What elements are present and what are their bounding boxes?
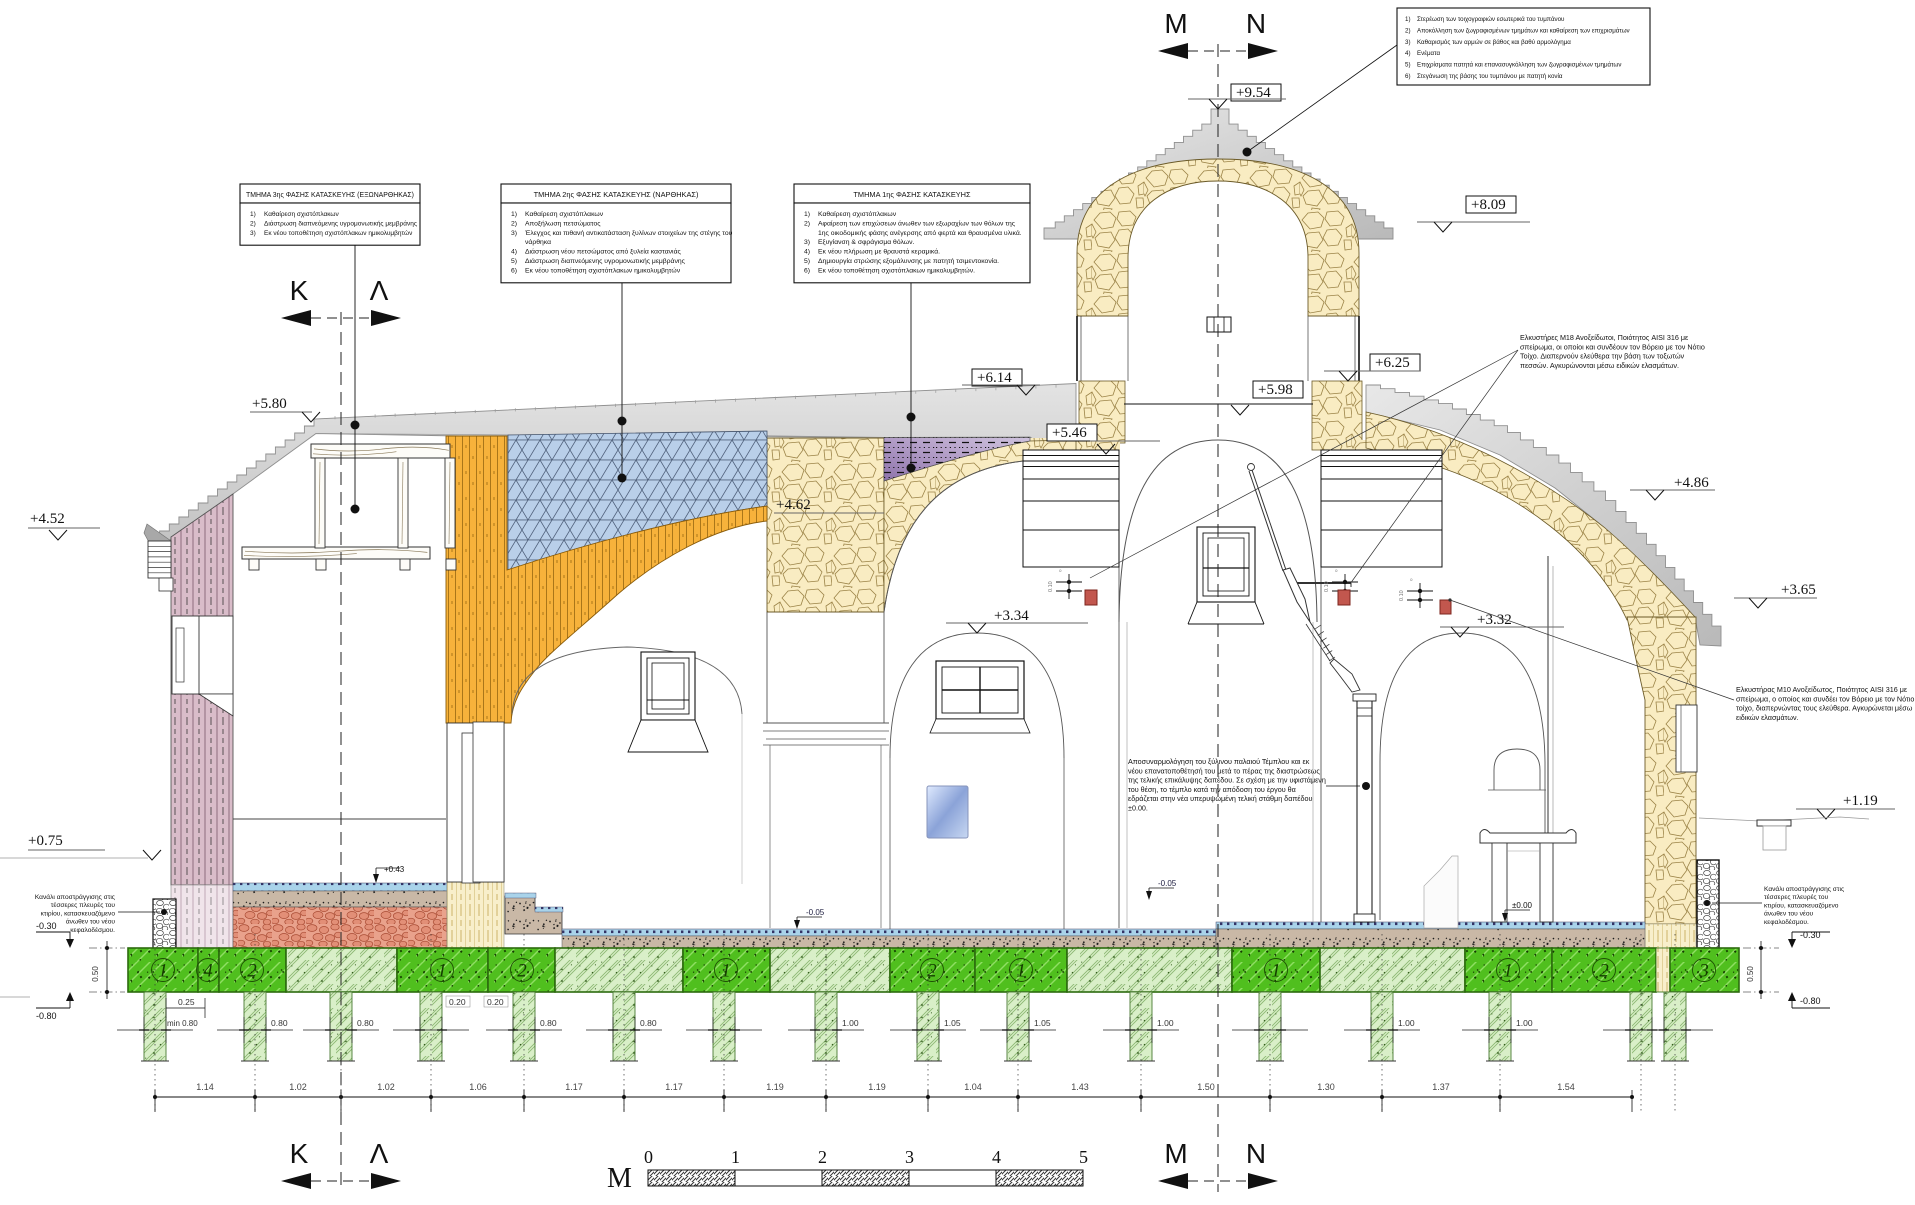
svg-text:0.10: 0.10 xyxy=(1399,590,1405,601)
svg-text:6): 6) xyxy=(804,267,810,274)
svg-text:4): 4) xyxy=(804,249,810,256)
svg-text:0.80: 0.80 xyxy=(640,1018,657,1028)
svg-text:Στεγάνωση της βάσης του τυμπάν: Στεγάνωση της βάσης του τυμπάνου με πατη… xyxy=(1417,73,1563,80)
svg-text:κτιρίου, κατασκευαζόμενο: κτιρίου, κατασκευαζόμενο xyxy=(1764,901,1839,909)
svg-text:0: 0 xyxy=(644,1147,653,1167)
svg-text:1: 1 xyxy=(158,961,168,982)
svg-text:1.54: 1.54 xyxy=(1557,1082,1575,1092)
svg-text:±0.00.: ±0.00. xyxy=(1128,804,1148,813)
svg-text:κτιρίου, κατασκευαζόμενο: κτιρίου, κατασκευαζόμενο xyxy=(41,909,116,917)
svg-text:Τοίχο. Διαπερνούν ελεύθερα την: Τοίχο. Διαπερνούν ελεύθερα την βάση των … xyxy=(1520,352,1685,361)
svg-text:+3.65: +3.65 xyxy=(1781,582,1816,598)
svg-text:1.17: 1.17 xyxy=(565,1082,583,1092)
svg-text:Αποξήλωση πετσώματος: Αποξήλωση πετσώματος xyxy=(525,219,601,227)
svg-text:5): 5) xyxy=(804,258,810,265)
svg-text:0.80: 0.80 xyxy=(540,1018,557,1028)
svg-text:K: K xyxy=(290,1138,309,1169)
svg-text:2: 2 xyxy=(927,961,937,982)
svg-text:+4.62: +4.62 xyxy=(776,497,811,513)
svg-text:1.50: 1.50 xyxy=(1197,1082,1215,1092)
svg-text:+4.52: +4.52 xyxy=(30,511,65,527)
svg-text:6): 6) xyxy=(1405,73,1411,80)
svg-text:Διάστρωση διαπνεόμενης υγρομον: Διάστρωση διαπνεόμενης υγρομονωτικής μεμ… xyxy=(525,257,686,265)
svg-text:3: 3 xyxy=(905,1147,914,1167)
svg-text:Εκ νέου τοποθέτηση σχιστόπλακω: Εκ νέου τοποθέτηση σχιστόπλακων ημικολυμ… xyxy=(525,266,681,274)
svg-text:2: 2 xyxy=(818,1147,827,1167)
svg-text:ΤΜΗΜΑ 3ης ΦΑΣΗΣ ΚΑΤΑΣΚΕΥΗΣ (ΕΞ: ΤΜΗΜΑ 3ης ΦΑΣΗΣ ΚΑΤΑΣΚΕΥΗΣ (ΕΞΩΝΑΡΘΗΚΑΣ) xyxy=(246,192,414,199)
svg-text:1.19: 1.19 xyxy=(766,1082,784,1092)
svg-text:1.02: 1.02 xyxy=(289,1082,307,1092)
svg-text:1: 1 xyxy=(437,961,447,982)
svg-text:Δημιουργία στρώσης εξομάλυνσης: Δημιουργία στρώσης εξομάλυνσης με πατητή… xyxy=(818,257,999,265)
svg-text:Διάστρωση νέου πετσώματος από: Διάστρωση νέου πετσώματος από ξυλεία κασ… xyxy=(525,248,681,256)
svg-text:1.30: 1.30 xyxy=(1317,1082,1335,1092)
svg-text:3): 3) xyxy=(804,239,810,246)
svg-text:1.17: 1.17 xyxy=(665,1082,683,1092)
svg-text:0.10: 0.10 xyxy=(1324,581,1330,592)
svg-text:1.19: 1.19 xyxy=(868,1082,886,1092)
svg-text:τοίχο, διαπερνώντας τους ελεύθ: τοίχο, διαπερνώντας τους ελεύθερα. Αγκυρ… xyxy=(1736,704,1913,713)
svg-text:πεσσών. Αγκυρώνονται μέσω ειδι: πεσσών. Αγκυρώνονται μέσω ειδικών ελασμά… xyxy=(1520,361,1679,370)
svg-text:-0.30: -0.30 xyxy=(36,921,57,931)
svg-text:1.05: 1.05 xyxy=(944,1018,961,1028)
svg-text:του θέση, το τέμπλο κατά την α: του θέση, το τέμπλο κατά την απόδοση του… xyxy=(1128,785,1296,794)
svg-text:-0.80: -0.80 xyxy=(1800,996,1821,1006)
svg-text:K: K xyxy=(290,275,309,306)
svg-text:σπείρωμα, οι οποίοι και συνδέο: σπείρωμα, οι οποίοι και συνδέουν τον Βόρ… xyxy=(1520,342,1705,351)
svg-text:+0.75: +0.75 xyxy=(28,833,63,849)
svg-text:2): 2) xyxy=(1405,27,1411,34)
svg-text:+6.25: +6.25 xyxy=(1375,355,1410,371)
svg-text:1.14: 1.14 xyxy=(196,1082,214,1092)
svg-text:1.04: 1.04 xyxy=(964,1082,982,1092)
svg-text:2): 2) xyxy=(804,220,810,227)
svg-text:+4.86: +4.86 xyxy=(1674,475,1709,491)
svg-text:νάρθηκα: νάρθηκα xyxy=(525,238,551,246)
svg-text:0.20: 0.20 xyxy=(487,997,504,1007)
svg-text:Εξυγίανση & σφράγισμα θόλων.: Εξυγίανση & σφράγισμα θόλων. xyxy=(818,238,914,246)
svg-text:2): 2) xyxy=(250,220,256,227)
svg-text:Λ: Λ xyxy=(370,1138,389,1169)
svg-text:-0.05: -0.05 xyxy=(1158,879,1177,888)
svg-text:άνωθεν του νέου: άνωθεν του νέου xyxy=(66,918,116,926)
svg-text:1): 1) xyxy=(250,211,256,218)
svg-text:άνωθεν του νέου: άνωθεν του νέου xyxy=(1764,910,1814,918)
svg-text:6): 6) xyxy=(511,267,517,274)
svg-text:M: M xyxy=(1164,1138,1187,1169)
svg-text:3): 3) xyxy=(1405,39,1411,46)
svg-text:ΤΜΗΜΑ 2ης ΦΑΣΗΣ ΚΑΤΑΣΚΕΥΗΣ (ΝΑ: ΤΜΗΜΑ 2ης ΦΑΣΗΣ ΚΑΤΑΣΚΕΥΗΣ (ΝΑΡΘΗΚΑΣ) xyxy=(534,190,699,199)
svg-text:-0.80: -0.80 xyxy=(36,1011,57,1021)
svg-text:+0.43: +0.43 xyxy=(384,865,405,874)
svg-text:+3.34: +3.34 xyxy=(994,608,1029,624)
svg-text:Ελκυστήρας Μ10 Ανοξείδωτος, Πο: Ελκυστήρας Μ10 Ανοξείδωτος, Ποιότητος AI… xyxy=(1736,685,1908,694)
svg-text:3): 3) xyxy=(250,230,256,237)
svg-text:Στερέωση των τοιχογραφιών εσωτ: Στερέωση των τοιχογραφιών εσωτερικά του … xyxy=(1417,16,1565,23)
svg-text:Καθαίρεση σχιστόπλακων: Καθαίρεση σχιστόπλακων xyxy=(525,210,604,218)
svg-text:Έλεγχος και πιθανή αντικατάστα: Έλεγχος και πιθανή αντικατάσταση ξυλίνων… xyxy=(524,229,733,237)
svg-text:Επιχρίσματα πατητά και επανασυ: Επιχρίσματα πατητά και επανασυγκόλληση τ… xyxy=(1417,62,1621,69)
svg-text:ΤΜΗΜΑ 1ης ΦΑΣΗΣ ΚΑΤΑΣΚΕΥΗΣ: ΤΜΗΜΑ 1ης ΦΑΣΗΣ ΚΑΤΑΣΚΕΥΗΣ xyxy=(853,190,971,199)
svg-text:2): 2) xyxy=(511,220,517,227)
svg-text:min 0.80: min 0.80 xyxy=(167,1019,198,1028)
svg-text:+5.46: +5.46 xyxy=(1052,425,1087,441)
svg-text:1ης οικοδομικής φάσης ανέγερση: 1ης οικοδομικής φάσης ανέγερσης από φερτ… xyxy=(818,229,1022,237)
svg-text:1.00: 1.00 xyxy=(1398,1018,1415,1028)
svg-text:Διάστρωση διαπνεόμενης υγρομον: Διάστρωση διαπνεόμενης υγρομονωτικής μεμ… xyxy=(264,219,417,227)
svg-text:4): 4) xyxy=(1405,50,1411,57)
svg-text:1.05: 1.05 xyxy=(1034,1018,1051,1028)
svg-text:-0.30: -0.30 xyxy=(1800,930,1821,940)
svg-text:N: N xyxy=(1246,1138,1266,1169)
svg-text:N: N xyxy=(1246,8,1266,39)
svg-text:0.50: 0.50 xyxy=(91,966,100,982)
svg-text:Καθαίρεση σχιστόπλακων: Καθαίρεση σχιστόπλακων xyxy=(818,210,897,218)
svg-text:3): 3) xyxy=(511,230,517,237)
svg-text:2: 2 xyxy=(1599,961,1609,982)
svg-text:4: 4 xyxy=(203,961,213,982)
svg-text:0.50: 0.50 xyxy=(1746,966,1755,982)
svg-text:4): 4) xyxy=(511,249,517,256)
svg-text:M: M xyxy=(607,1163,632,1194)
svg-text:1.06: 1.06 xyxy=(469,1082,487,1092)
svg-text:0.10: 0.10 xyxy=(1048,581,1054,592)
svg-text:1.43: 1.43 xyxy=(1071,1082,1089,1092)
svg-text:1: 1 xyxy=(731,1147,740,1167)
svg-text:1): 1) xyxy=(511,211,517,218)
svg-text:0.80: 0.80 xyxy=(357,1018,374,1028)
svg-text:κεφαλοδέσμου.: κεφαλοδέσμου. xyxy=(70,926,115,934)
svg-text:1.02: 1.02 xyxy=(377,1082,395,1092)
svg-text:τέσσερες πλευρές του: τέσσερες πλευρές του xyxy=(1764,893,1829,901)
svg-text:1.00: 1.00 xyxy=(1157,1018,1174,1028)
svg-text:1.00: 1.00 xyxy=(1516,1018,1533,1028)
svg-text:5): 5) xyxy=(511,258,517,265)
svg-text:εδράζεται στην νέα υπερυψωμένη: εδράζεται στην νέα υπερυψωμένη τελική στ… xyxy=(1128,794,1313,803)
svg-text:Κανάλι αποστράγγισης στις: Κανάλι αποστράγγισης στις xyxy=(35,893,115,901)
svg-text:+5.98: +5.98 xyxy=(1258,382,1293,398)
svg-text:Εκ νέου τοποθέτηση σχιστόπλακω: Εκ νέου τοποθέτηση σχιστόπλακων ημικολυμ… xyxy=(264,229,412,237)
svg-text:0.20: 0.20 xyxy=(449,997,466,1007)
svg-text:σπείρωμα, ο οποίος και συνδέει: σπείρωμα, ο οποίος και συνδέει τον Βόρει… xyxy=(1736,694,1914,703)
svg-text:5: 5 xyxy=(1079,1147,1088,1167)
svg-text:4: 4 xyxy=(992,1147,1001,1167)
svg-text:Λ: Λ xyxy=(370,275,389,306)
svg-text:Κανάλι αποστράγγισης στις: Κανάλι αποστράγγισης στις xyxy=(1764,885,1844,893)
svg-text:5): 5) xyxy=(1405,62,1411,69)
svg-text:3: 3 xyxy=(1698,961,1709,982)
svg-text:+8.09: +8.09 xyxy=(1471,197,1506,213)
svg-text:Αποσυναρμολόγηση του ξύλινου π: Αποσυναρμολόγηση του ξύλινου παλαιού Τέμ… xyxy=(1128,757,1310,766)
svg-text:2: 2 xyxy=(517,961,527,982)
svg-text:1: 1 xyxy=(1503,961,1513,982)
svg-text:0.25: 0.25 xyxy=(178,997,195,1007)
svg-text:1.37: 1.37 xyxy=(1432,1082,1450,1092)
svg-text:0.80: 0.80 xyxy=(271,1018,288,1028)
svg-text:+1.19: +1.19 xyxy=(1843,793,1878,809)
svg-text:+6.14: +6.14 xyxy=(977,370,1012,386)
svg-text:κεφαλοδέσμου.: κεφαλοδέσμου. xyxy=(1764,918,1809,926)
svg-text:της τελικής επικάλυψης δαπέδου: της τελικής επικάλυψης δαπέδου. Σε σχέση… xyxy=(1128,776,1326,785)
svg-text:Εκ νέου πλήρωση με θραυστά κερ: Εκ νέου πλήρωση με θραυστά κεραμικά. xyxy=(818,248,940,256)
svg-text:1: 1 xyxy=(1016,961,1026,982)
svg-text:τέσσερες πλευρές του: τέσσερες πλευρές του xyxy=(51,901,116,909)
svg-text:1): 1) xyxy=(804,211,810,218)
svg-text:1: 1 xyxy=(721,961,731,982)
svg-text:+5.80: +5.80 xyxy=(252,396,287,412)
svg-text:Καθαίρεση σχιστόπλακων: Καθαίρεση σχιστόπλακων xyxy=(264,210,339,218)
svg-text:Ενέματα: Ενέματα xyxy=(1417,50,1440,57)
svg-text:νέου επανατοποθέτησή του μετά: νέου επανατοποθέτησή του μετά το πέρας τ… xyxy=(1128,766,1320,775)
svg-text:2: 2 xyxy=(247,961,257,982)
svg-text:±0.00: ±0.00 xyxy=(1512,901,1533,910)
svg-text:Καθαρισμός των αρμών σε βάθος: Καθαρισμός των αρμών σε βάθος και βαθύ α… xyxy=(1417,39,1571,46)
svg-text:1): 1) xyxy=(1405,16,1411,23)
svg-text:Αφαίρεση των επιχώσεων άνωθεν: Αφαίρεση των επιχώσεων άνωθεν των εξωραχ… xyxy=(818,219,1016,227)
svg-text:1.00: 1.00 xyxy=(842,1018,859,1028)
svg-text:Ελκυστήρες Μ18 Ανοξείδωτοι, Πο: Ελκυστήρες Μ18 Ανοξείδωτοι, Ποιότητος AI… xyxy=(1520,333,1689,342)
svg-text:1: 1 xyxy=(1271,961,1281,982)
svg-text:-0.05: -0.05 xyxy=(806,908,825,917)
svg-text:M: M xyxy=(1164,8,1187,39)
svg-text:Αποκόλληση των ζωγραφισμένων τ: Αποκόλληση των ζωγραφισμένων τμημάτων κα… xyxy=(1417,27,1630,34)
svg-text:Εκ νέου τοποθέτηση σχιστόπλακω: Εκ νέου τοποθέτηση σχιστόπλακων ημικολυμ… xyxy=(818,266,975,274)
svg-text:ειδικών ελασμάτων.: ειδικών ελασμάτων. xyxy=(1736,713,1799,722)
